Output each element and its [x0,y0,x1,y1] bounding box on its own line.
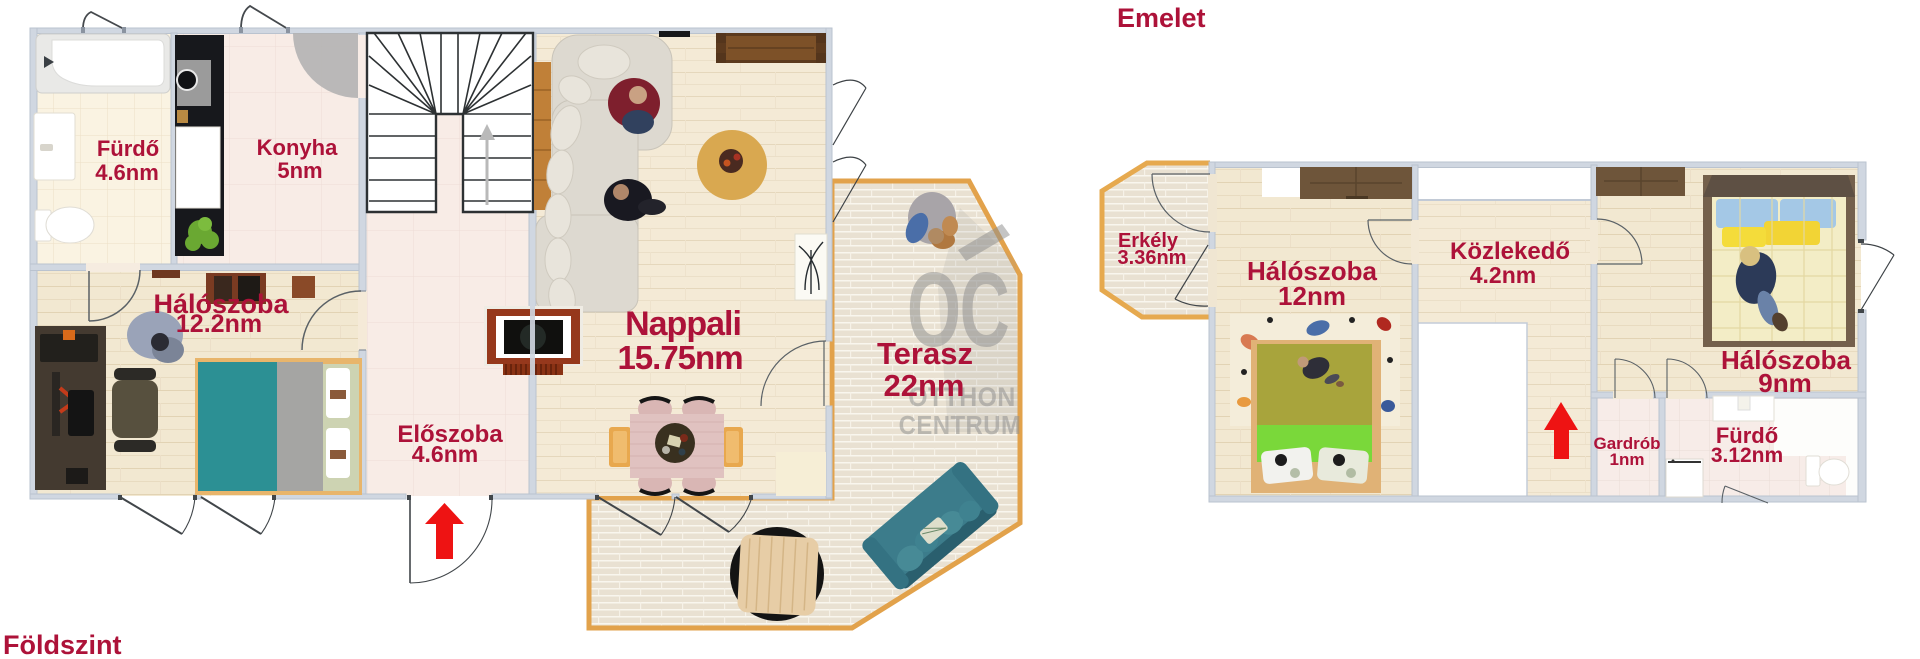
svg-text:Terasz: Terasz [877,336,973,371]
svg-text:3.36nm: 3.36nm [1118,247,1187,269]
svg-text:9nm: 9nm [1758,368,1811,398]
svg-text:4.6nm: 4.6nm [95,160,159,185]
svg-text:15.75nm: 15.75nm [617,339,742,376]
svg-text:4.6nm: 4.6nm [412,441,478,467]
svg-text:CENTRUM: CENTRUM [899,411,1022,440]
svg-text:22nm: 22nm [884,368,965,403]
svg-text:1nm: 1nm [1610,450,1645,469]
svg-text:4.2nm: 4.2nm [1470,262,1536,288]
svg-text:Emelet: Emelet [1117,3,1206,33]
svg-text:3.12nm: 3.12nm [1711,444,1783,467]
svg-text:Konyha: Konyha [257,135,338,160]
svg-text:Fürdő: Fürdő [97,136,159,161]
svg-text:5nm: 5nm [277,158,322,183]
svg-text:Földszint: Földszint [3,630,121,659]
svg-text:12.2nm: 12.2nm [176,310,262,338]
svg-text:12nm: 12nm [1278,281,1346,311]
svg-text:Közlekedő: Közlekedő [1450,238,1570,265]
svg-text:Nappali: Nappali [625,305,741,343]
